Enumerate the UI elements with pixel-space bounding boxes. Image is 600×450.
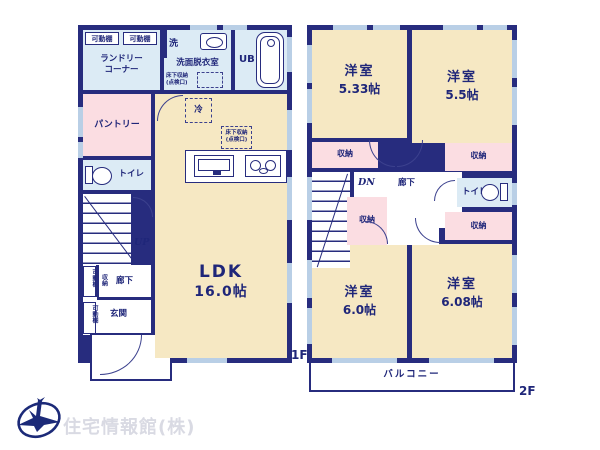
- window-marker: [78, 107, 83, 137]
- window-marker: [187, 358, 227, 363]
- room-bedroom-ne: 洋室 5.5帖: [412, 30, 512, 143]
- movable-shelf-label: 可動棚: [87, 305, 98, 323]
- washroom-label: 洗面脱衣室: [164, 58, 231, 69]
- floor2-tag: 2F: [519, 384, 536, 398]
- window-marker: [512, 40, 517, 78]
- window-marker: [78, 142, 83, 158]
- movable-shelf: 可動棚: [123, 32, 157, 45]
- refrigerator-label: 冷: [186, 105, 211, 116]
- kitchen-sink-icon: [194, 155, 234, 177]
- room-toilet-1f: トイレ: [83, 160, 151, 190]
- bedroom-size: 6.08帖: [412, 295, 512, 310]
- window-marker: [512, 183, 517, 205]
- floor-storage-label: 床下収納 (点検口): [222, 130, 251, 144]
- window-marker: [307, 177, 312, 220]
- entrance-door-arc: [100, 335, 142, 375]
- floor-storage-hatch: [197, 72, 223, 88]
- movable-shelf: 可動棚: [83, 266, 96, 297]
- floor2-plan: 洋室 5.33帖 洋室 5.5帖 洋室 6.0帖 洋室 6.08帖 DN 廊下 …: [307, 25, 517, 363]
- toilet-bowl-icon: [481, 184, 499, 201]
- movable-shelf-label: 可動棚: [124, 35, 156, 44]
- closet-label: 収納: [312, 149, 378, 159]
- window-marker: [307, 260, 312, 298]
- window-marker: [287, 263, 292, 303]
- ldk-size: 16.0帖: [155, 284, 287, 302]
- window-marker: [307, 308, 312, 344]
- door-arc: [133, 197, 153, 217]
- toilet-tank-icon: [500, 183, 508, 201]
- bedroom-name: 洋室: [412, 277, 512, 293]
- movable-shelf: 可動棚: [83, 302, 96, 334]
- room-bedroom-se: 洋室 6.08帖: [412, 244, 512, 358]
- room-toilet-2f: トイレ: [457, 178, 512, 207]
- window-marker: [429, 358, 494, 363]
- movable-shelf-label: 可動棚: [86, 35, 118, 44]
- window-marker: [287, 37, 292, 72]
- bedroom-size: 5.5帖: [412, 88, 512, 103]
- window-marker: [512, 307, 517, 345]
- balcony-label: バルコニー: [311, 369, 513, 381]
- window-marker: [443, 25, 477, 30]
- stairs-down-label: DN: [358, 177, 375, 189]
- floor-storage-label: 床下収納 (点検口): [166, 73, 188, 87]
- unit-bath-label: UB: [239, 54, 255, 67]
- window-marker: [333, 25, 367, 30]
- balcony: バルコニー: [309, 358, 515, 392]
- floorplan-image: バルコニー 可動棚 可動棚 ランドリー コーナー 洗 洗面脱衣室 床下収納 (点…: [0, 0, 600, 450]
- bedroom-size: 6.0帖: [312, 303, 407, 318]
- room-laundry-corner: 可動棚 可動棚 ランドリー コーナー: [83, 30, 160, 90]
- closet-se: 収納: [445, 212, 512, 240]
- hallway-label: 廊下: [398, 178, 415, 189]
- refrigerator-space: 冷: [185, 98, 212, 123]
- pantry-label: パントリー: [83, 120, 151, 131]
- room-pantry: パントリー: [83, 94, 151, 156]
- window-marker: [287, 177, 292, 220]
- hallway-label: 廊下: [116, 276, 133, 287]
- company-logo-bird-icon: [14, 392, 64, 444]
- closet-label: 収納: [445, 151, 512, 161]
- room-ldk: 冷 床下収納 (点検口) LDK 16.0帖: [155, 94, 287, 358]
- hall-storage-label: 収納: [100, 274, 108, 286]
- window-marker: [512, 255, 517, 293]
- stairs-up-label: UP: [134, 237, 149, 249]
- kitchen-counter: [185, 150, 287, 183]
- closet-label: 収納: [445, 221, 512, 231]
- washer-label: 洗: [169, 39, 178, 50]
- window-marker: [373, 25, 400, 30]
- window-marker: [223, 25, 247, 30]
- laundry-label: ランドリー コーナー: [83, 54, 160, 75]
- window-marker: [287, 110, 292, 150]
- window-marker: [483, 25, 507, 30]
- toilet-label: トイレ: [118, 169, 144, 180]
- bedroom-size: 5.33帖: [312, 82, 407, 97]
- floor1-tag: 1F: [291, 348, 308, 362]
- washbasin-icon: [200, 33, 227, 50]
- door-arc: [397, 140, 423, 167]
- company-name: 住宅情報館(株): [63, 413, 195, 439]
- window-marker: [307, 45, 312, 83]
- room-bedroom-nw: 洋室 5.33帖: [312, 30, 407, 138]
- room-washroom: 洗 洗面脱衣室 床下収納 (点検口): [164, 30, 231, 90]
- bedroom-name: 洋室: [412, 70, 512, 86]
- hall-entrance-1f: 可動棚 可動棚 収納 廊下 玄関: [83, 265, 151, 335]
- bathtub-icon: [256, 32, 284, 88]
- window-marker: [190, 25, 217, 30]
- window-marker: [307, 89, 312, 123]
- kitchen-stove-icon: [245, 155, 281, 177]
- floor1-plan: 可動棚 可動棚 ランドリー コーナー 洗 洗面脱衣室 床下収納 (点検口) UB: [78, 25, 292, 363]
- entrance-label: 玄関: [110, 309, 127, 320]
- bedroom-name: 洋室: [312, 285, 407, 301]
- window-marker: [512, 87, 517, 125]
- closet-nw: 収納: [312, 142, 378, 168]
- closet-ne: 収納: [445, 143, 512, 171]
- floor-storage-hatch: 床下収納 (点検口): [221, 126, 252, 149]
- movable-shelf: 可動棚: [85, 32, 119, 45]
- window-marker: [332, 358, 397, 363]
- door-arc: [157, 95, 183, 121]
- room-unit-bath: UB: [235, 30, 287, 90]
- bedroom-name: 洋室: [312, 64, 407, 80]
- toilet-bowl-icon: [92, 167, 112, 185]
- ldk-name: LDK: [155, 262, 287, 283]
